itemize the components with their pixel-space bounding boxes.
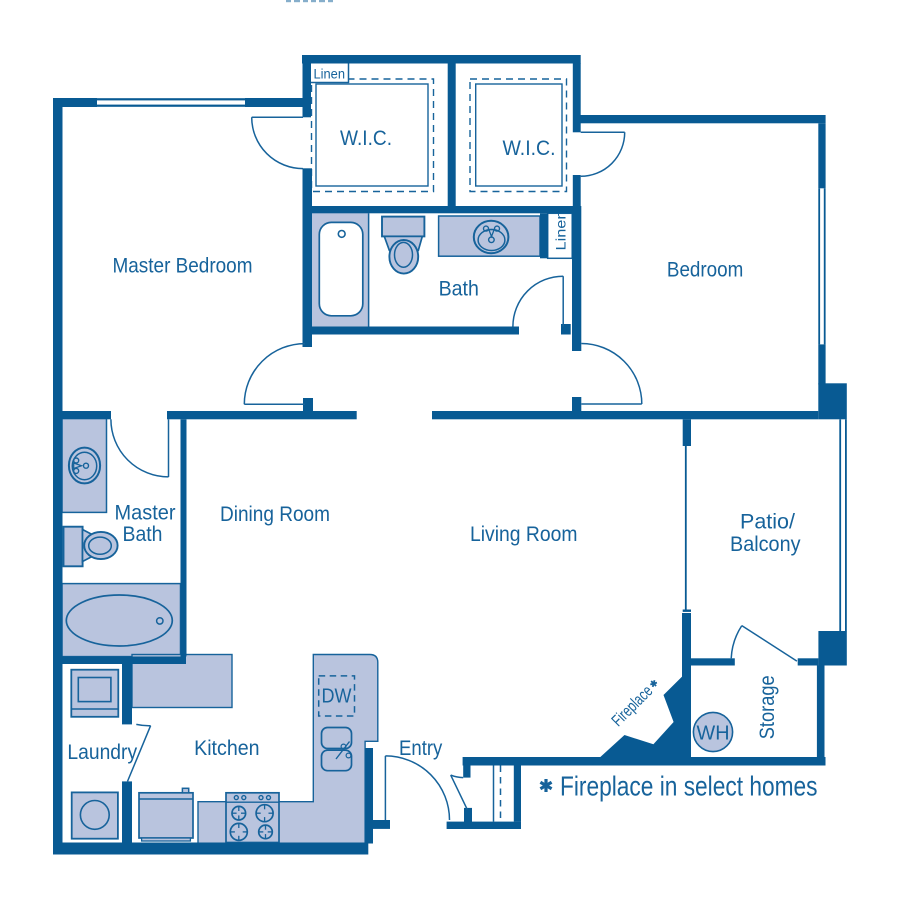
svg-text:Linen: Linen (314, 66, 346, 82)
svg-text:Bath: Bath (123, 523, 163, 546)
svg-text:Entry: Entry (399, 737, 443, 760)
svg-text:Patio/: Patio/ (740, 510, 795, 533)
svg-text:Dining Room: Dining Room (220, 503, 330, 526)
svg-text:Laundry: Laundry (67, 741, 137, 764)
svg-text:Balcony: Balcony (730, 533, 801, 556)
svg-text:Storage: Storage (756, 675, 779, 739)
svg-text:Master: Master (115, 502, 176, 525)
svg-text:Kitchen: Kitchen (194, 737, 260, 760)
svg-text:Fireplace in select homes: Fireplace in select homes (560, 771, 818, 802)
svg-text:Bath: Bath (439, 278, 479, 301)
svg-text:WH: WH (697, 723, 730, 745)
svg-text:Living Room: Living Room (470, 523, 578, 546)
svg-text:W.I.C.: W.I.C. (503, 137, 556, 160)
svg-text:Linen: Linen (553, 211, 569, 251)
svg-text:Master Bedroom: Master Bedroom (113, 255, 253, 278)
svg-text:DW: DW (322, 686, 352, 708)
svg-text:Bedroom: Bedroom (667, 259, 743, 282)
svg-text:W.I.C.: W.I.C. (340, 127, 392, 150)
